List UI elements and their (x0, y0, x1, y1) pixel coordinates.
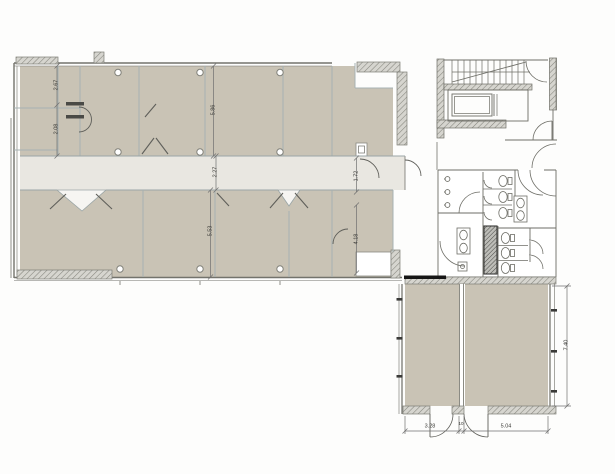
dimension-label-annex-depth: 7.40 (564, 340, 570, 351)
office-area-top (20, 66, 355, 156)
annex-block (397, 276, 558, 438)
dimension-label-main-left-lower: 2.08 (54, 124, 60, 135)
dimension-label-vestibule-width: 1.72 (354, 171, 360, 182)
annex-room-right (464, 284, 548, 406)
dimension-label-top-room-depth: 5.86 (211, 105, 217, 116)
accent-wall-line (404, 276, 446, 280)
annex-room-left (405, 284, 459, 406)
floor-plan-canvas: 2.67 2.08 5.86 2.27 5.53 1.72 4.18 3.28 … (0, 0, 615, 474)
dimension-label-annex-mid-gap: 10 (458, 422, 463, 427)
dimension-label-corridor-width: 2.27 (213, 167, 219, 178)
dimension-label-main-left-upper: 2.67 (54, 80, 60, 91)
duct-shaft (484, 226, 497, 274)
fixture-niche (356, 143, 367, 156)
floor-plan-drawing (0, 0, 615, 474)
dimension-label-bottom-room-depth: 5.53 (208, 226, 214, 237)
dimension-label-right-room-depth: 4.18 (354, 234, 360, 245)
dimension-label-annex-left-width: 3.28 (425, 424, 436, 430)
elevator-car (452, 94, 492, 116)
sinks-right (514, 196, 527, 222)
dimension-label-annex-right-width: 5.04 (501, 424, 512, 430)
bathroom-core (438, 144, 556, 277)
stairwell-block (437, 58, 557, 140)
service-room (356, 252, 391, 276)
